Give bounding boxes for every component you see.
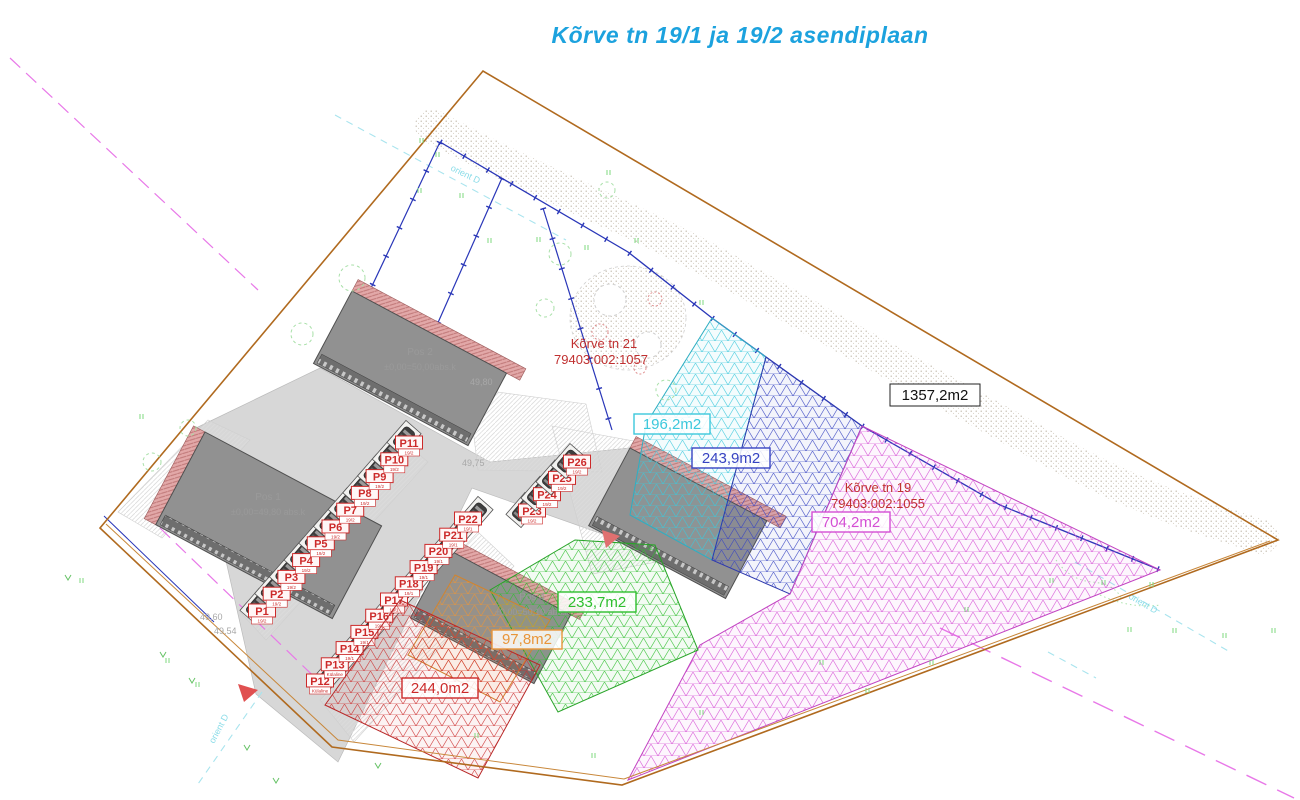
zone-label-green: 233,7m2 bbox=[558, 592, 636, 612]
stall-label: P9 bbox=[373, 471, 386, 483]
plan-title: Kõrve tn 19/1 ja 19/2 asendiplaan bbox=[552, 22, 929, 49]
pos4-label: Pos 4 bbox=[519, 592, 545, 603]
stall-label: P2 bbox=[270, 589, 283, 601]
stall-sub-label: 19/2 bbox=[375, 484, 384, 489]
boundary-area-value: 1357,2m2 bbox=[902, 387, 969, 404]
stall-sub-label: 19/2 bbox=[573, 470, 582, 475]
spot-elevation: 49,80 bbox=[470, 377, 493, 387]
pos2-elevation: ±0,00=50,00abs.k bbox=[384, 362, 456, 372]
spot-elevation: 49,60 bbox=[200, 612, 223, 622]
stall-sub-label: 19/1 bbox=[449, 543, 458, 548]
boundary-area-label: 1357,2m2 bbox=[890, 384, 980, 406]
pos1-elevation: ±0,00=49,80 abs.k bbox=[231, 507, 306, 517]
stall-sub-label: 19/2 bbox=[405, 450, 414, 455]
pos1-label: Pos 1 bbox=[255, 492, 281, 503]
parcel-korve21-label: Kõrve tn 21 79403:002:1057 bbox=[554, 336, 648, 367]
zone-label-red: 244,0m2 bbox=[402, 678, 478, 698]
stall-sub-label: 19/2 bbox=[390, 467, 399, 472]
zone-label-magenta: 704,2m2 bbox=[812, 512, 890, 532]
stall-label: P11 bbox=[400, 438, 419, 450]
svg-text:243,9m2: 243,9m2 bbox=[702, 450, 760, 467]
stall-label: P4 bbox=[299, 555, 313, 567]
korve21-cadastral: 79403:002:1057 bbox=[554, 352, 648, 367]
orient-label-2: orient D bbox=[207, 712, 231, 745]
site-plan-canvas: Kõrve tn 19/1 ja 19/2 asendiplaan bbox=[0, 0, 1300, 800]
stall-sub-label: 19/1 bbox=[419, 575, 428, 580]
korve19-name: Kõrve tn 19 bbox=[845, 480, 912, 495]
stall-label: P22 bbox=[458, 514, 478, 526]
stall-sub-label: 19/2 bbox=[258, 618, 267, 623]
korve19-cadastral: 79403:002:1055 bbox=[831, 496, 925, 511]
zone-label-cyan: 196,2m2 bbox=[634, 414, 710, 434]
pos2-label: Pos 2 bbox=[407, 347, 433, 358]
zone-label-orange: 97,8m2 bbox=[492, 630, 562, 649]
svg-text:196,2m2: 196,2m2 bbox=[643, 416, 701, 433]
stall-sub-label: 19/1 bbox=[464, 526, 473, 531]
stall-label: P6 bbox=[329, 522, 342, 534]
stall-sub-label: 19/2 bbox=[287, 585, 296, 590]
stall-sub-label: Külaline bbox=[327, 672, 344, 677]
stall-sub-label: 19/2 bbox=[558, 486, 567, 491]
site-plan-svg: orient D orient D orient D bbox=[0, 0, 1300, 800]
svg-text:704,2m2: 704,2m2 bbox=[822, 514, 880, 531]
mound-circle bbox=[594, 284, 626, 316]
korve21-name: Kõrve tn 21 bbox=[571, 336, 638, 351]
svg-text:244,0m2: 244,0m2 bbox=[411, 680, 469, 697]
stall-label: P7 bbox=[343, 505, 356, 517]
stall-sub-label: 19/2 bbox=[543, 502, 552, 507]
spot-elevation: 49,54 bbox=[214, 626, 237, 636]
stall-label: P26 bbox=[567, 457, 587, 469]
svg-text:233,7m2: 233,7m2 bbox=[568, 594, 626, 611]
stall-sub-label: 19/1 bbox=[434, 559, 443, 564]
stall-label: P10 bbox=[385, 455, 405, 467]
stall-sub-label: 19/2 bbox=[302, 568, 311, 573]
svg-text:97,8m2: 97,8m2 bbox=[502, 631, 552, 648]
parcel-korve19-label: Kõrve tn 19 79403:002:1055 bbox=[831, 480, 925, 511]
stall-sub-label: 19/2 bbox=[528, 518, 537, 523]
stall-sub-label: 19/1 bbox=[345, 656, 354, 661]
stall-sub-label: 19/2 bbox=[360, 501, 369, 506]
spot-elevation: 49,75 bbox=[462, 458, 485, 468]
stall-sub-label: 19/2 bbox=[316, 551, 325, 556]
stall-sub-label: 19/1 bbox=[360, 640, 369, 645]
stall-sub-label: 19/2 bbox=[272, 602, 281, 607]
stall-sub-label: 19/2 bbox=[331, 534, 340, 539]
stall-sub-label: 19/1 bbox=[404, 591, 413, 596]
stall-label: P1 bbox=[255, 606, 268, 618]
stall-sub-label: Külaline bbox=[312, 688, 329, 693]
stall-label: P8 bbox=[358, 488, 371, 500]
stall-sub-label: 19/2 bbox=[346, 518, 355, 523]
zone-label-blue: 243,9m2 bbox=[692, 448, 770, 468]
stall-label: P5 bbox=[314, 539, 327, 551]
stall-label: P3 bbox=[285, 572, 298, 584]
